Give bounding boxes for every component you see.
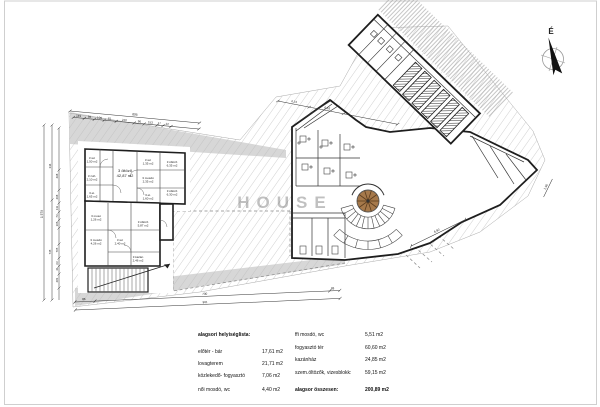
legend-row-label: lovagterem	[198, 361, 223, 367]
svg-text:4,26 m2: 4,26 m2	[91, 242, 102, 246]
svg-text:1,26 m2: 1,26 m2	[91, 218, 102, 222]
svg-text:735: 735	[48, 249, 52, 254]
svg-text:111: 111	[55, 205, 59, 210]
svg-text:901: 901	[203, 300, 209, 304]
svg-text:1,96: 1,96	[543, 183, 549, 190]
svg-text:63: 63	[55, 261, 59, 265]
svg-text:2,46 m2: 2,46 m2	[133, 259, 144, 263]
svg-text:2,35 m2: 2,35 m2	[143, 180, 154, 184]
legend-row-value: 17,61 m2	[262, 349, 283, 355]
svg-text:96: 96	[137, 119, 141, 123]
legend-row-label: fogyasztó tér	[295, 345, 324, 351]
svg-text:86: 86	[82, 297, 86, 301]
svg-text:1,50 m2: 1,50 m2	[87, 160, 98, 164]
spiral-stair	[357, 190, 379, 212]
legend-header: alagsori helyiséglista:	[198, 332, 250, 338]
svg-text:1 579: 1 579	[40, 210, 44, 218]
svg-text:208: 208	[55, 194, 59, 199]
legend-total-label: alagsor összesen:	[295, 387, 338, 393]
svg-text:17: 17	[157, 121, 161, 125]
svg-text:1,35 m2: 1,35 m2	[143, 162, 154, 166]
legend-row-label: női mosdó, wc	[198, 387, 230, 393]
legend-row-value: 59,15 m2	[365, 370, 386, 376]
svg-text:5,87 m2: 5,87 m2	[138, 224, 149, 228]
legend-row-label: szem.öltözők, vizesblokk:	[295, 370, 351, 376]
legend-row-value: 7,06 m2	[262, 373, 280, 379]
svg-text:41: 41	[55, 267, 59, 271]
svg-text:220: 220	[122, 118, 128, 122]
legend-total-value: 200,89 m2	[365, 387, 389, 393]
svg-text:2,10 m2: 2,10 m2	[87, 178, 98, 182]
legend-row-value: 24,85 m2	[365, 357, 386, 363]
svg-text:705: 705	[55, 247, 59, 252]
drawing-sheet: HOUSE 895 149 96 106 81 220 96 153 17 22	[0, 0, 600, 407]
legend-row-value: 5,51 m2	[365, 332, 383, 338]
legend-row-value: 4,40 m2	[262, 387, 280, 393]
watermark-text: HOUSE	[237, 193, 332, 212]
legend-row-label: ffi mosdó, wc	[295, 332, 324, 338]
legend-row-label: kazánház	[295, 357, 316, 363]
svg-text:281: 281	[55, 277, 59, 282]
legend-row-label: közlekedő- fogyasztó	[198, 373, 245, 379]
svg-text:149: 149	[76, 114, 82, 118]
svg-text:730: 730	[202, 292, 208, 296]
svg-text:468: 468	[55, 173, 59, 178]
svg-text:83: 83	[331, 286, 335, 290]
svg-text:22: 22	[165, 122, 169, 126]
svg-text:153: 153	[148, 120, 154, 124]
svg-text:106: 106	[97, 116, 103, 120]
dim-left-chains: 1 579 344 735 468 208 111 73 105 705 63 …	[40, 124, 61, 302]
svg-text:6,35 m2: 6,35 m2	[167, 164, 178, 168]
svg-text:105: 105	[55, 221, 59, 226]
svg-text:895: 895	[132, 112, 138, 116]
north-arrow-needle	[545, 36, 562, 75]
svg-text:73: 73	[55, 214, 59, 218]
legend-row-value: 60,60 m2	[365, 345, 386, 351]
legend-table: alagsori helyiséglista: előtér - bár 17,…	[185, 330, 405, 400]
svg-text:2,40 m2: 2,40 m2	[115, 242, 126, 246]
svg-text:1,65 m2: 1,65 m2	[87, 195, 98, 199]
north-arrow: É	[541, 27, 565, 75]
north-label: É	[548, 27, 554, 36]
svg-text:6,30 m2: 6,30 m2	[167, 193, 178, 197]
legend-row-label: előtér - bár	[198, 349, 222, 355]
svg-text:344: 344	[48, 163, 52, 168]
legend-row-value: 21,71 m2	[262, 361, 283, 367]
svg-text:42,87 m2: 42,87 m2	[117, 173, 134, 178]
svg-text:1,60 m2: 1,60 m2	[143, 197, 154, 201]
